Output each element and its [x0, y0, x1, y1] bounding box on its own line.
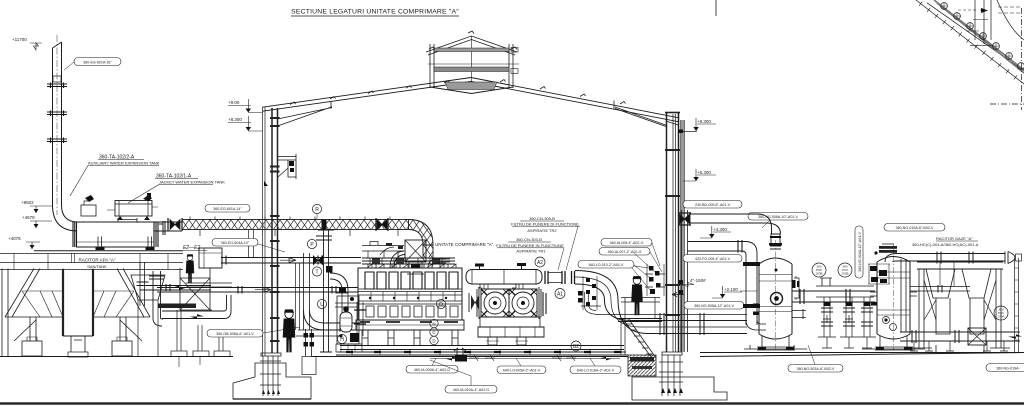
svg-text:B2: B2 — [573, 344, 579, 350]
svg-text:360-NG-019A-6"-B02-V: 360-NG-019A-6"-B02-V — [896, 226, 934, 230]
svg-text:460-IA-008-4"-A02-G: 460-IA-008-4"-A02-G — [610, 241, 644, 245]
svg-text:+11700: +11700 — [12, 37, 27, 42]
svg-text:RACITOR APA "A": RACITOR APA "A" — [78, 257, 115, 262]
svg-text:360-NG-503A-6"-B02-V: 360-NG-503A-6"-B02-V — [797, 367, 835, 371]
svg-text:P: P — [310, 242, 314, 248]
svg-text:640-LO-016A-2"-A01-V: 640-LO-016A-2"-A01-V — [577, 369, 615, 373]
svg-text:+6.300: +6.300 — [697, 170, 711, 175]
svg-text:+8.300: +8.300 — [228, 117, 242, 122]
svg-text:360-GB-536A-6"-A01-V: 360-GB-536A-6"-A01-V — [216, 332, 254, 336]
svg-text:SECTIUNE LEGATURI UNITATE C: SECTIUNE LEGATURI UNITATE COMPRIMARE "A" — [291, 9, 459, 16]
svg-text:ASPIRATIE TR1: ASPIRATIE TR1 — [516, 249, 546, 254]
svg-text:360-NG-505A-12"-A01-V: 360-NG-505A-12"-A01-V — [694, 304, 734, 308]
svg-text:+9502: +9502 — [21, 200, 34, 205]
svg-text:H: H — [340, 337, 344, 343]
svg-text:360-EG-601A-14": 360-EG-601A-14" — [213, 207, 242, 211]
svg-text:103B: 103B — [841, 272, 848, 276]
svg-text:C: C — [432, 330, 436, 335]
svg-text:360-EG-604A-10": 360-EG-604A-10" — [221, 241, 250, 245]
svg-text:+4678: +4678 — [22, 215, 35, 220]
svg-text:E2—E2: E2—E2 — [183, 245, 200, 251]
svg-text:U: U — [320, 302, 324, 308]
svg-text:D: D — [432, 339, 436, 344]
svg-text:640-LO-010-2"-A01-V: 640-LO-010-2"-A01-V — [589, 263, 624, 267]
svg-text:AUXILIARY WATER EXPANSION TANK: AUXILIARY WATER EXPANSION TANK — [88, 161, 160, 166]
svg-text:460-IA-009A-4"-A02-G: 460-IA-009A-4"-A02-G — [414, 368, 450, 372]
svg-text:T: T — [315, 270, 318, 276]
svg-text:FILTRU DE PUNERE DI FUNCTIONE: FILTRU DE PUNERE DI FUNCTIONE — [511, 221, 579, 226]
svg-text:+8.300: +8.300 — [697, 119, 711, 124]
svg-text:4"-150#: 4"-150# — [690, 278, 706, 283]
svg-text:SAN/TANK: SAN/TANK — [87, 264, 107, 269]
svg-text:360-NG-016A-12"-A01-V: 360-NG-016A-12"-A01-V — [858, 231, 862, 271]
svg-text:ASPIRATIE TR2: ASPIRATIE TR2 — [527, 228, 557, 233]
svg-text:+9.00: +9.00 — [228, 100, 240, 105]
svg-text:UNITATE COMPRIMARE "A": UNITATE COMPRIMARE "A" — [435, 242, 494, 247]
svg-text:+4.300: +4.300 — [713, 227, 727, 232]
svg-text:O: O — [439, 302, 443, 308]
svg-text:420-FG-005-4"-A01-V: 420-FG-005-4"-A01-V — [695, 257, 731, 261]
svg-text:JACKET WATER EXPANSION TANK: JACKET WATER EXPANSION TANK — [159, 180, 225, 185]
svg-text:360-EG-601A-16": 360-EG-601A-16" — [83, 61, 112, 65]
svg-text:103B: 103B — [815, 272, 822, 276]
svg-text:640-LO-005A-2"-A01-V: 640-LO-005A-2"-A01-V — [503, 369, 541, 373]
svg-text:R: R — [315, 207, 319, 213]
svg-text:N: N — [432, 322, 435, 327]
svg-text:RACITOR GAZE "A": RACITOR GAZE "A" — [936, 236, 973, 241]
svg-text:460-IA-007-2"-A02-G: 460-IA-007-2"-A02-G — [608, 250, 642, 254]
svg-text:360-HC(C)-001-A/360-HC(AC)-001: 360-HC(C)-001-A/360-HC(AC)-001-A — [912, 242, 979, 247]
svg-text:+2.100: +2.100 — [724, 287, 738, 292]
svg-text:360-CN-305-B: 360-CN-305-B — [529, 216, 555, 221]
svg-text:360-CN-303-B: 360-CN-303-B — [516, 237, 542, 242]
svg-text:+4078: +4078 — [8, 236, 21, 241]
svg-text:A1: A1 — [557, 292, 563, 298]
svg-text:460-IA-010A-4"-A02-G: 460-IA-010A-4"-A02-G — [453, 388, 489, 392]
svg-text:A2: A2 — [537, 260, 543, 266]
svg-text:230-BD-005-8"-A01-V: 230-BD-005-8"-A01-V — [695, 203, 731, 207]
svg-text:FILTRU DE PUNERE IN FUNCTIUNE: FILTRU DE PUNERE IN FUNCTIUNE — [496, 243, 564, 248]
svg-text:360-NG-019A-: 360-NG-019A- — [996, 367, 1020, 371]
